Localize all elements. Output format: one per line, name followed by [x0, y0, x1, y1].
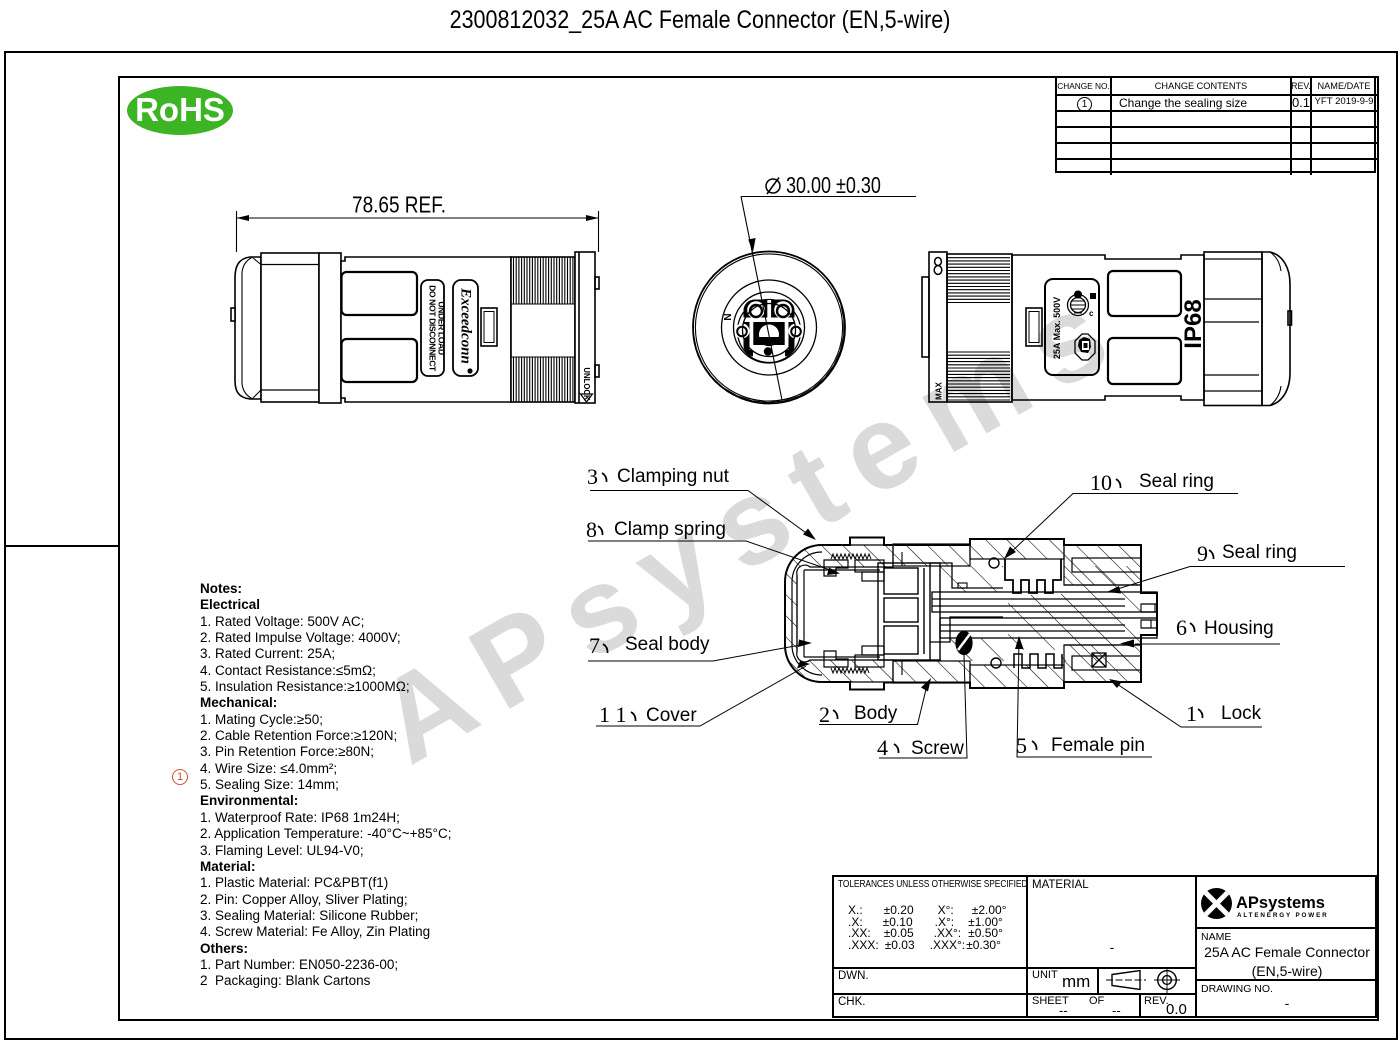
- svg-text:7: 7: [589, 633, 600, 658]
- svg-text:6: 6: [1176, 615, 1187, 640]
- svg-text:Body: Body: [854, 703, 898, 724]
- svg-text:MAX: MAX: [935, 381, 944, 399]
- svg-text:UNDER LOAD: UNDER LOAD: [437, 301, 447, 354]
- svg-text:Housing: Housing: [1204, 618, 1274, 639]
- svg-text:9: 9: [1197, 541, 1208, 566]
- svg-text:8: 8: [586, 517, 597, 542]
- svg-text:10: 10: [1090, 470, 1112, 495]
- svg-text:1 1: 1 1: [599, 702, 627, 727]
- svg-text:25A Max. 500V: 25A Max. 500V: [1052, 297, 1062, 359]
- svg-text:3: 3: [587, 464, 598, 489]
- svg-text:Screw: Screw: [911, 738, 964, 759]
- svg-text:DO NOT DISCONNECT: DO NOT DISCONNECT: [428, 285, 438, 372]
- svg-text:c: c: [1089, 309, 1094, 318]
- svg-text:Seal ring: Seal ring: [1222, 542, 1297, 563]
- svg-text:UNLOCK: UNLOCK: [582, 367, 591, 401]
- svg-text:Exceedconn: Exceedconn: [458, 287, 474, 364]
- svg-text:Seal ring: Seal ring: [1139, 471, 1214, 492]
- svg-text:2: 2: [819, 702, 830, 727]
- svg-text:Female pin: Female pin: [1051, 735, 1145, 756]
- svg-text:Clamp spring: Clamp spring: [614, 519, 726, 540]
- svg-text:78.65 REF.: 78.65 REF.: [352, 193, 446, 218]
- svg-text:1: 1: [1186, 701, 1197, 726]
- svg-text:N: N: [723, 313, 734, 320]
- svg-text:Cover: Cover: [646, 705, 697, 726]
- svg-text:30.00 ±0.30: 30.00 ±0.30: [786, 173, 881, 199]
- svg-text:Lock: Lock: [1221, 703, 1262, 724]
- svg-text:Seal body: Seal body: [625, 634, 710, 655]
- svg-text:IP68: IP68: [1180, 299, 1207, 348]
- svg-text:4: 4: [877, 735, 888, 760]
- svg-text:Clamping nut: Clamping nut: [617, 466, 730, 487]
